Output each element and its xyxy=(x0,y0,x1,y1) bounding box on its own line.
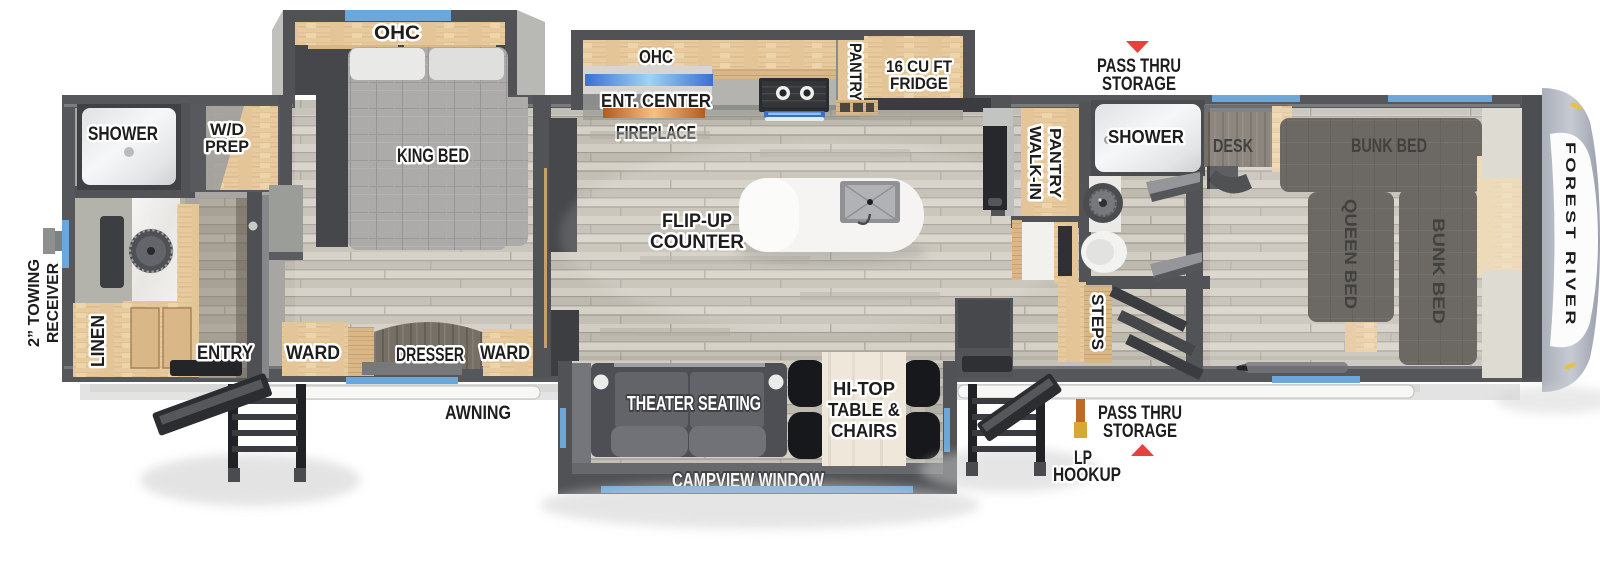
svg-text:PREP: PREP xyxy=(205,137,249,156)
svg-text:WARD: WARD xyxy=(480,343,530,364)
svg-text:ENTRY: ENTRY xyxy=(197,343,253,364)
svg-text:SHOWER: SHOWER xyxy=(88,124,158,145)
svg-text:STEPS: STEPS xyxy=(1088,294,1107,350)
svg-text:THEATER SEATING: THEATER SEATING xyxy=(627,393,761,415)
svg-text:AWNING: AWNING xyxy=(445,403,511,424)
svg-text:WALK-IN: WALK-IN xyxy=(1026,126,1043,200)
svg-text:STORAGE: STORAGE xyxy=(1102,74,1176,95)
svg-text:FRIDGE: FRIDGE xyxy=(890,74,948,93)
svg-text:2” TOWING: 2” TOWING xyxy=(26,259,43,347)
svg-text:OHC: OHC xyxy=(639,47,673,67)
svg-text:TABLE &: TABLE & xyxy=(828,400,900,420)
svg-text:LINEN: LINEN xyxy=(88,315,108,367)
svg-text:CHAIRS: CHAIRS xyxy=(831,421,897,441)
svg-text:COUNTER: COUNTER xyxy=(650,232,744,253)
svg-text:DRESSER: DRESSER xyxy=(396,345,464,366)
svg-text:RECEIVER: RECEIVER xyxy=(45,263,62,343)
svg-text:STORAGE: STORAGE xyxy=(1103,421,1177,442)
svg-text:PANTRY: PANTRY xyxy=(1046,128,1063,198)
svg-text:PANTRY: PANTRY xyxy=(846,43,865,102)
svg-text:HI-TOP: HI-TOP xyxy=(833,379,895,399)
svg-text:WARD: WARD xyxy=(286,343,340,364)
svg-text:KING BED: KING BED xyxy=(397,146,469,167)
svg-text:SHOWER: SHOWER xyxy=(1108,127,1184,147)
svg-text:OHC: OHC xyxy=(374,23,420,44)
svg-text:FLIP-UP: FLIP-UP xyxy=(662,211,732,232)
svg-text:FOREST RIVER: FOREST RIVER xyxy=(1563,142,1579,328)
svg-text:HOOKUP: HOOKUP xyxy=(1053,465,1121,486)
